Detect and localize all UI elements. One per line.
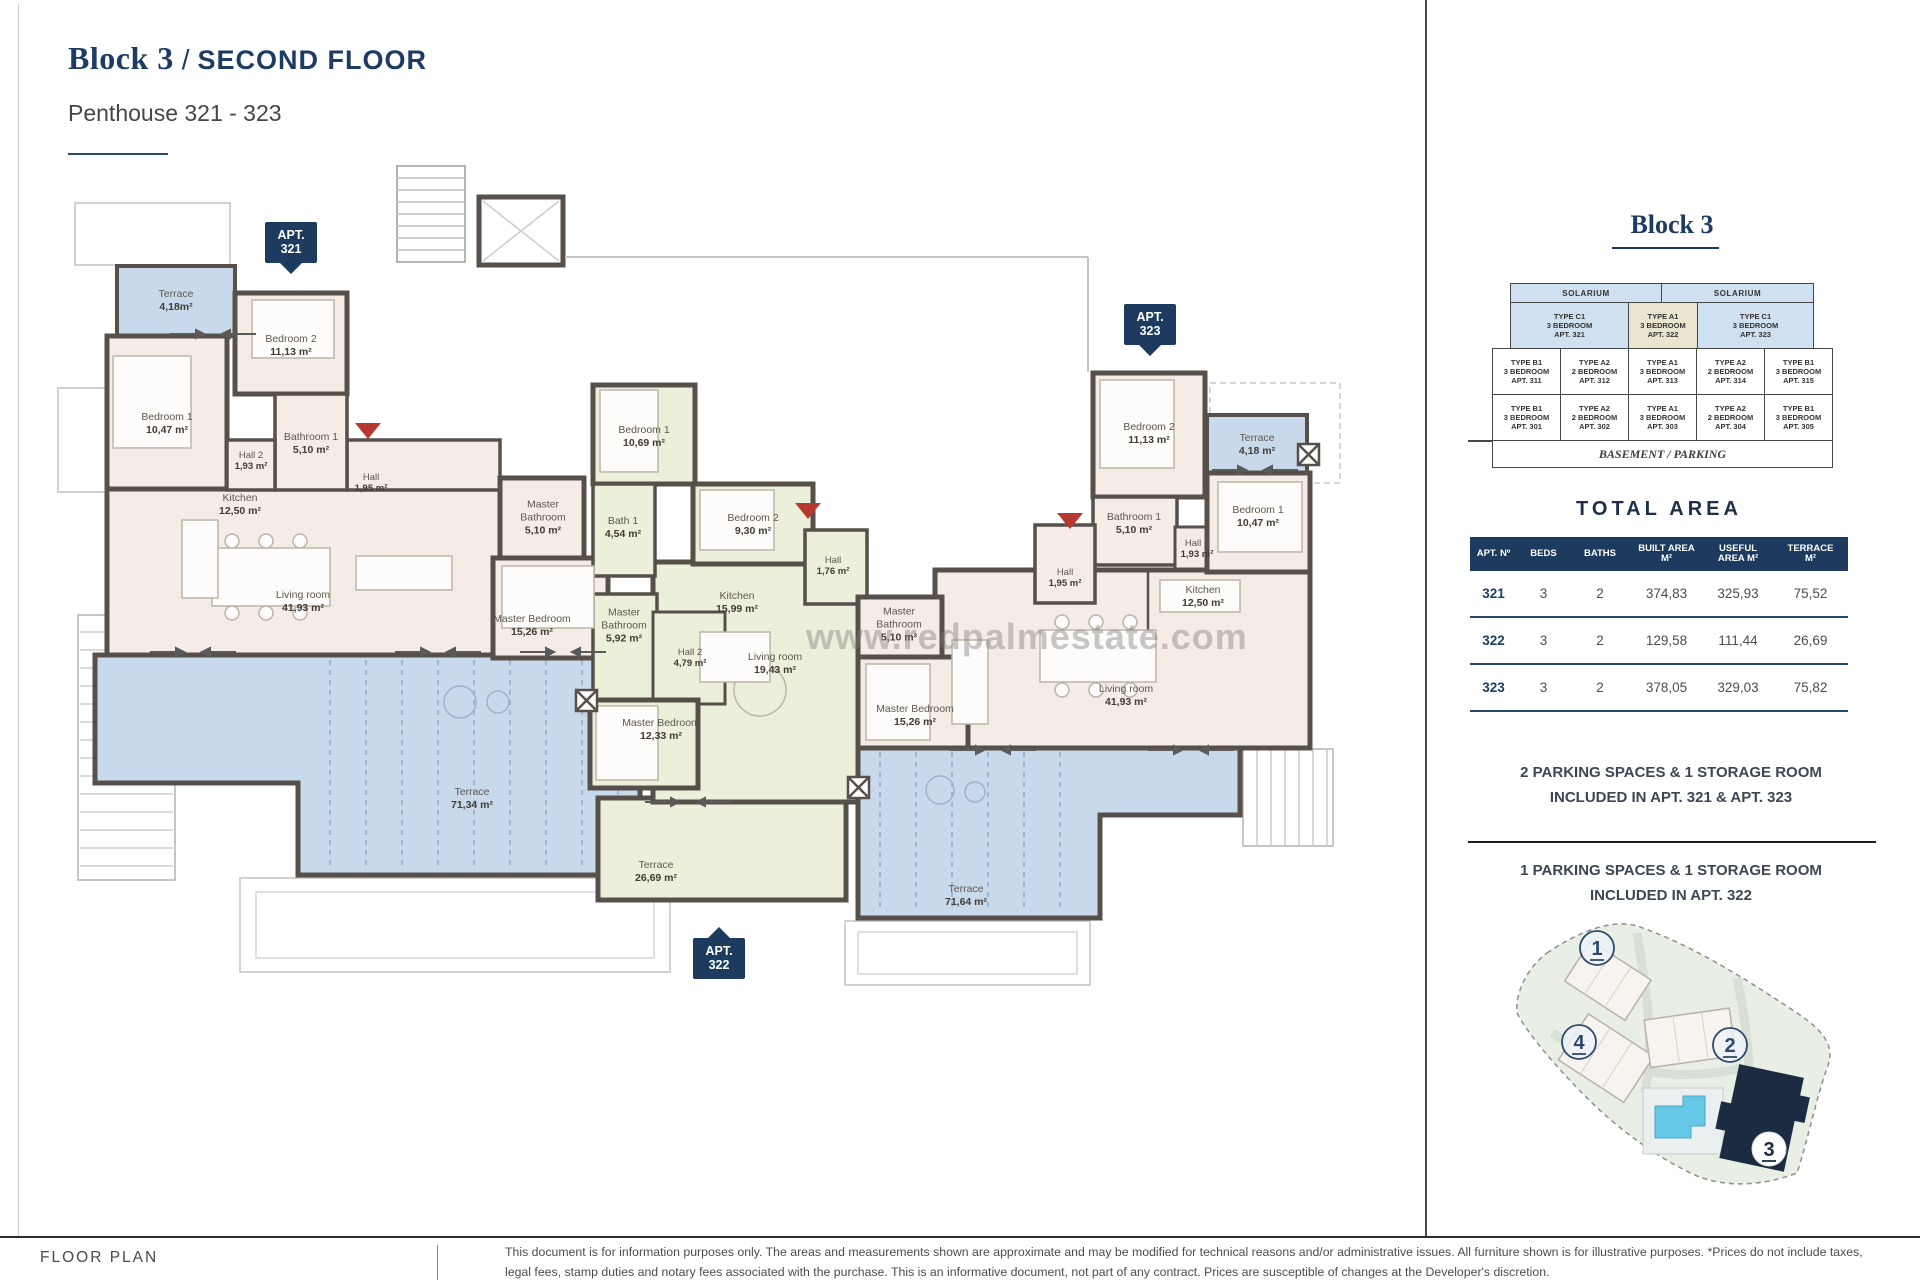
badge-line2: 322: [709, 958, 730, 972]
total-area-row-321: 321 3 2 374,83 325,93 75,52: [1470, 571, 1848, 618]
footer-disclaimer: This document is for information purpose…: [505, 1243, 1877, 1280]
room-label-323-terrace-big: Terrace71,64 m²: [945, 883, 987, 909]
room-name: Living room: [748, 651, 802, 664]
room-area: 10,47 m²: [141, 424, 192, 437]
room-area: 5,10 m²: [1094, 524, 1174, 537]
room-name: Terrace: [451, 786, 493, 799]
stack-cell-apt305: TYPE B13 BEDROOMAPT. 305: [1764, 394, 1833, 441]
cell-terrace: 75,82: [1773, 665, 1848, 710]
note-line2: INCLUDED IN APT. 322: [1590, 887, 1752, 904]
stack-cell-apt304: TYPE A22 BEDROOMAPT. 304: [1696, 394, 1765, 441]
room-name: Kitchen: [219, 492, 261, 505]
apt-323-badge: APT.323: [1124, 304, 1176, 345]
cell-text: SOLARIUM: [1662, 289, 1813, 298]
room-area: 4,54 m²: [594, 528, 652, 541]
room-area: 1,95 m²: [1049, 578, 1082, 589]
room-name: Master Bathroom: [587, 607, 661, 633]
apt-321-badge: APT.321: [265, 222, 317, 263]
room-name: Hall: [1049, 567, 1082, 578]
room-area: 1,93 m²: [1181, 549, 1214, 560]
room-name: Hall: [355, 472, 388, 483]
stack-cell-solarium-left: SOLARIUM: [1510, 283, 1662, 303]
cell-apt: 322: [1470, 618, 1517, 663]
room-name: Hall 2: [674, 647, 707, 658]
room-name: Kitchen: [1182, 584, 1224, 597]
cell-useful: 111,44: [1703, 618, 1773, 663]
room-name: Terrace: [945, 883, 987, 896]
room-area: 12,50 m²: [1182, 597, 1224, 610]
stack-cell-apt314: TYPE A22 BEDROOMAPT. 314: [1696, 348, 1765, 395]
room-area: 41,93 m²: [1099, 696, 1153, 709]
cell-useful: 325,93: [1703, 571, 1773, 616]
room-name: Hall: [817, 555, 850, 566]
cell-text: BASEMENT / PARKING: [1493, 450, 1832, 459]
page-left-border: [18, 4, 19, 1238]
room-label-322-hall2: Hall 24,79 m²: [674, 647, 707, 669]
room-label-322-hall: Hall1,76 m²: [817, 555, 850, 577]
col-header-beds: BEDS: [1517, 537, 1570, 571]
room-area: 12,33 m²: [621, 730, 701, 743]
room-label-321-master-bedroom: Master Bedroom15,26 m²: [492, 613, 572, 639]
room-name: Bedroom 1: [1232, 504, 1283, 517]
room-label-321-terrace-small: Terrace4,18m²: [141, 288, 211, 314]
cell-beds: 3: [1517, 618, 1570, 663]
room-area: 1,93 m²: [235, 461, 268, 472]
room-name: Hall 2: [235, 450, 268, 461]
cell-baths: 2: [1570, 665, 1630, 710]
col-header-apt: APT. Nº: [1470, 537, 1517, 571]
cell-built: 374,83: [1630, 571, 1703, 616]
room-area: 10,69 m²: [618, 437, 669, 450]
room-label-323-master-bedroom: Master Bedroom15,26 m²: [875, 703, 955, 729]
parking-note-penthouses: 2 PARKING SPACES & 1 STORAGE ROOM INCLUD…: [1466, 760, 1876, 810]
stack-cell-apt312: TYPE A22 BEDROOMAPT. 312: [1560, 348, 1629, 395]
room-area: 1,76 m²: [817, 566, 850, 577]
footer-label: FLOOR PLAN: [40, 1249, 158, 1267]
badge-line1: APT.: [277, 228, 304, 242]
room-area: 15,99 m²: [716, 603, 758, 616]
room-name: Bedroom 2: [727, 512, 778, 525]
room-name: Terrace: [635, 859, 677, 872]
room-area: 5,10 m²: [271, 444, 351, 457]
room-label-323-hall2: Hall 21,93 m²: [1181, 538, 1214, 560]
stack-cell-apt301: TYPE B13 BEDROOMAPT. 301: [1492, 394, 1561, 441]
total-area-heading: TOTAL AREA: [1470, 498, 1848, 521]
cell-baths: 2: [1570, 618, 1630, 663]
room-label-322-bedroom1: Bedroom 110,69 m²: [618, 424, 669, 450]
cell-baths: 2: [1570, 571, 1630, 616]
stack-cell-apt315: TYPE B13 BEDROOMAPT. 315: [1764, 348, 1833, 395]
block3-heading-underline: [1612, 247, 1719, 249]
cell-useful: 329,03: [1703, 665, 1773, 710]
room-name: Master Bedroom: [875, 703, 955, 716]
room-label-322-bath1: Bath 14,54 m²: [594, 515, 652, 541]
note-line2: INCLUDED IN APT. 321 & APT. 323: [1550, 789, 1792, 806]
room-area: 11,13 m²: [1123, 434, 1174, 447]
cell-beds: 3: [1517, 571, 1570, 616]
stack-cell-basement: BASEMENT / PARKING: [1492, 440, 1833, 468]
cell-built: 378,05: [1630, 665, 1703, 710]
room-name: Bedroom 2: [1123, 421, 1174, 434]
block3-heading: Block 3: [1612, 210, 1732, 240]
room-label-322-terrace: Terrace26,69 m²: [635, 859, 677, 885]
total-area-row-322: 322 3 2 129,58 111,44 26,69: [1470, 618, 1848, 665]
col-header-built: BUILT AREA M²: [1630, 537, 1703, 571]
badge-line2: 323: [1140, 324, 1161, 338]
room-area: 15,26 m²: [875, 716, 955, 729]
room-area: 5,10 m²: [507, 525, 579, 538]
room-area: 71,64 m²: [945, 896, 987, 909]
parking-note-apt322: 1 PARKING SPACES & 1 STORAGE ROOM INCLUD…: [1466, 858, 1876, 908]
room-area: 12,50 m²: [219, 505, 261, 518]
room-label-321-hall: Hall1,95 m²: [355, 472, 388, 494]
room-name: Bathroom 1: [271, 431, 351, 444]
room-name: Master Bedroom: [492, 613, 572, 626]
stack-cell-apt322-highlighted: TYPE A13 BEDROOMAPT. 322: [1628, 302, 1698, 349]
cell-apt: 321: [1470, 571, 1517, 616]
room-label-323-bedroom1: Bedroom 110,47 m²: [1232, 504, 1283, 530]
block-2-number: 2: [1724, 1035, 1735, 1057]
room-area: 4,18 m²: [1222, 445, 1292, 458]
room-area: 26,69 m²: [635, 872, 677, 885]
room-area: 41,93 m²: [276, 602, 330, 615]
badge-line1: APT.: [1136, 310, 1163, 324]
room-area: 4,18m²: [141, 301, 211, 314]
cell-apt: 323: [1470, 665, 1517, 710]
room-name: Bedroom 1: [141, 411, 192, 424]
footer-divider: [437, 1245, 438, 1280]
cell-terrace: 75,52: [1773, 571, 1848, 616]
badge-line2: 321: [281, 242, 302, 256]
room-name: Master Bedroom: [621, 717, 701, 730]
room-label-321-hall2: Hall 21,93 m²: [235, 450, 268, 472]
stack-cell-apt311: TYPE B13 BEDROOMAPT. 311: [1492, 348, 1561, 395]
room-label-323-bathroom1: Bathroom 15,10 m²: [1094, 511, 1174, 537]
stack-cell-solarium-right: SOLARIUM: [1661, 283, 1814, 303]
room-name: Terrace: [141, 288, 211, 301]
room-label-322-bedroom2: Bedroom 29,30 m²: [727, 512, 778, 538]
room-label-321-bedroom1: Bedroom 110,47 m²: [141, 411, 192, 437]
room-label-322-living: Living room19,43 m²: [748, 651, 802, 677]
room-name: Terrace: [1222, 432, 1292, 445]
total-area-header-row: APT. Nº BEDS BATHS BUILT AREA M² USEFUL …: [1470, 537, 1848, 571]
col-header-terrace: TERRACE M²: [1773, 537, 1848, 571]
room-name: Bath 1: [594, 515, 652, 528]
room-area: 19,43 m²: [748, 664, 802, 677]
room-area: 71,34 m²: [451, 799, 493, 812]
parking-notes-divider: [1468, 841, 1876, 843]
room-area: 1,95 m²: [355, 483, 388, 494]
block-3-number: 3: [1763, 1139, 1774, 1161]
room-label-322-master-bedroom: Master Bedroom12,33 m²: [621, 717, 701, 743]
room-name: Kitchen: [716, 590, 758, 603]
badge-line1: APT.: [705, 944, 732, 958]
room-name: Living room: [276, 589, 330, 602]
room-area: 5,92 m²: [587, 633, 661, 646]
room-name: Master Bathroom: [507, 499, 579, 525]
cell-beds: 3: [1517, 665, 1570, 710]
room-label-321-master-bathroom: Master Bathroom5,10 m²: [507, 499, 579, 538]
stack-cell-apt303: TYPE A13 BEDROOMAPT. 303: [1628, 394, 1697, 441]
room-label-323-kitchen: Kitchen12,50 m²: [1182, 584, 1224, 610]
stack-cell-apt313: TYPE A13 BEDROOMAPT. 313: [1628, 348, 1697, 395]
note-line1: 2 PARKING SPACES & 1 STORAGE ROOM: [1520, 764, 1822, 781]
room-label-321-terrace-big: Terrace71,34 m²: [451, 786, 493, 812]
room-label-323-hall: Hall1,95 m²: [1049, 567, 1082, 589]
site-pool: [1643, 1088, 1723, 1154]
cell-built: 129,58: [1630, 618, 1703, 663]
room-area: 4,79 m²: [674, 658, 707, 669]
room-name: Bathroom 1: [1094, 511, 1174, 524]
stack-cell-apt323: TYPE C13 BEDROOMAPT. 323: [1697, 302, 1814, 349]
col-header-baths: BATHS: [1570, 537, 1630, 571]
cell-terrace: 26,69: [1773, 618, 1848, 663]
note-line1: 1 PARKING SPACES & 1 STORAGE ROOM: [1520, 862, 1822, 879]
room-label-321-bathroom1: Bathroom 15,10 m²: [271, 431, 351, 457]
block3-stacking-plan: SOLARIUM SOLARIUM TYPE C13 BEDROOMAPT. 3…: [1492, 283, 1833, 469]
footer-separator: [0, 1236, 1920, 1238]
room-label-323-terrace-small: Terrace4,18 m²: [1222, 432, 1292, 458]
apt-322-badge: APT.322: [693, 938, 745, 979]
room-area: 15,26 m²: [492, 626, 572, 639]
room-area: 10,47 m²: [1232, 517, 1283, 530]
total-area-row-323: 323 3 2 378,05 329,03 75,82: [1470, 665, 1848, 712]
room-label-323-living: Living room41,93 m²: [1099, 683, 1153, 709]
col-header-useful: USEFUL AREA M²: [1703, 537, 1773, 571]
room-name: Living room: [1099, 683, 1153, 696]
stack-cell-apt321: TYPE C13 BEDROOMAPT. 321: [1510, 302, 1629, 349]
room-label-322-master-bathroom: Master Bathroom5,92 m²: [587, 607, 661, 646]
panel-divider: [1425, 0, 1427, 1238]
room-label-321-kitchen: Kitchen12,50 m²: [219, 492, 261, 518]
block-1-number: 1: [1591, 938, 1602, 960]
site-location-map: 1 4 2 3: [1497, 918, 1887, 1202]
room-label-321-bedroom2: Bedroom 211,13 m²: [265, 333, 316, 359]
watermark: www.redpalmestate.com: [806, 616, 1248, 658]
room-name: Bedroom 2: [265, 333, 316, 346]
cell-text: SOLARIUM: [1511, 289, 1661, 298]
room-label-321-living: Living room41,93 m²: [276, 589, 330, 615]
room-label-322-kitchen: Kitchen15,99 m²: [716, 590, 758, 616]
stack-cell-apt302: TYPE A22 BEDROOMAPT. 302: [1560, 394, 1629, 441]
room-name: Bedroom 1: [618, 424, 669, 437]
stack-basement-line: [1468, 440, 1492, 442]
room-label-323-bedroom2: Bedroom 211,13 m²: [1123, 421, 1174, 447]
room-area: 11,13 m²: [265, 346, 316, 359]
block-4-number: 4: [1573, 1032, 1585, 1054]
room-name: Hall 2: [1181, 538, 1214, 549]
room-area: 9,30 m²: [727, 525, 778, 538]
